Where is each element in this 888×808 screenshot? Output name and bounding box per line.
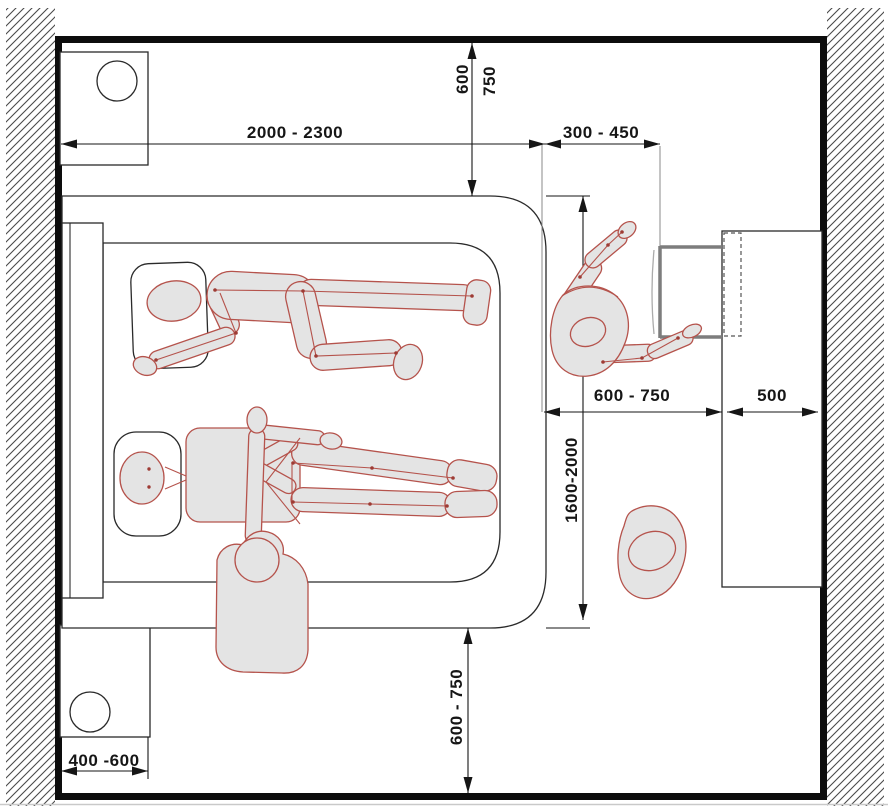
ottoman xyxy=(618,506,686,599)
left-wall-hatch xyxy=(6,8,55,806)
dim-bed-to-wardrobe-label: 300 - 450 xyxy=(563,123,639,142)
top-wall xyxy=(55,36,822,43)
dim-bed-length: 1600-2000 xyxy=(562,196,588,620)
dim-wardrobe-depth-label: 500 xyxy=(757,386,787,405)
nightstand-bottom-left xyxy=(60,625,150,737)
leg xyxy=(291,487,452,517)
lamp-icon xyxy=(70,692,110,732)
dim-foot-clearance: 600 - 750 xyxy=(447,628,473,793)
dim-wardrobe-access-label: 600 - 750 xyxy=(594,386,670,405)
person-reaching-into-wardrobe xyxy=(550,218,703,376)
lamp-icon xyxy=(97,61,137,101)
headboard xyxy=(62,223,103,598)
nightstand-top-left xyxy=(60,52,148,165)
dim-bed-to-wardrobe: 300 - 450 xyxy=(545,123,660,149)
wardrobe-open-door xyxy=(660,246,722,338)
dim-bed-width-label: 2000 - 2300 xyxy=(247,123,343,142)
eye-dot xyxy=(147,467,150,470)
dim-bed-length-label: 1600-2000 xyxy=(562,437,581,523)
hand xyxy=(247,407,267,433)
eye-dot xyxy=(147,485,150,488)
dim-foot-clearance-label: 600 - 750 xyxy=(447,669,466,745)
right-wall-hatch xyxy=(827,8,884,806)
dim-head-clearance: 600 750 xyxy=(453,43,499,196)
bed xyxy=(62,196,546,628)
dim-750-label: 750 xyxy=(480,66,499,96)
dim-wardrobe-access: 600 - 750 xyxy=(544,386,722,417)
dim-600-label: 600 xyxy=(453,64,472,94)
dim-nightstand-width-label: 400 -600 xyxy=(68,751,139,770)
bedroom-plan-canvas: 2000 - 2300 300 - 450 600 750 1600-2000 … xyxy=(0,0,888,808)
head xyxy=(235,538,279,582)
foot xyxy=(445,490,498,518)
bottom-wall xyxy=(55,793,827,800)
dim-nightstand-width: 400 -600 xyxy=(61,751,148,776)
head xyxy=(120,452,164,504)
door-swing-edge xyxy=(652,250,654,334)
raised-arm xyxy=(245,428,265,543)
